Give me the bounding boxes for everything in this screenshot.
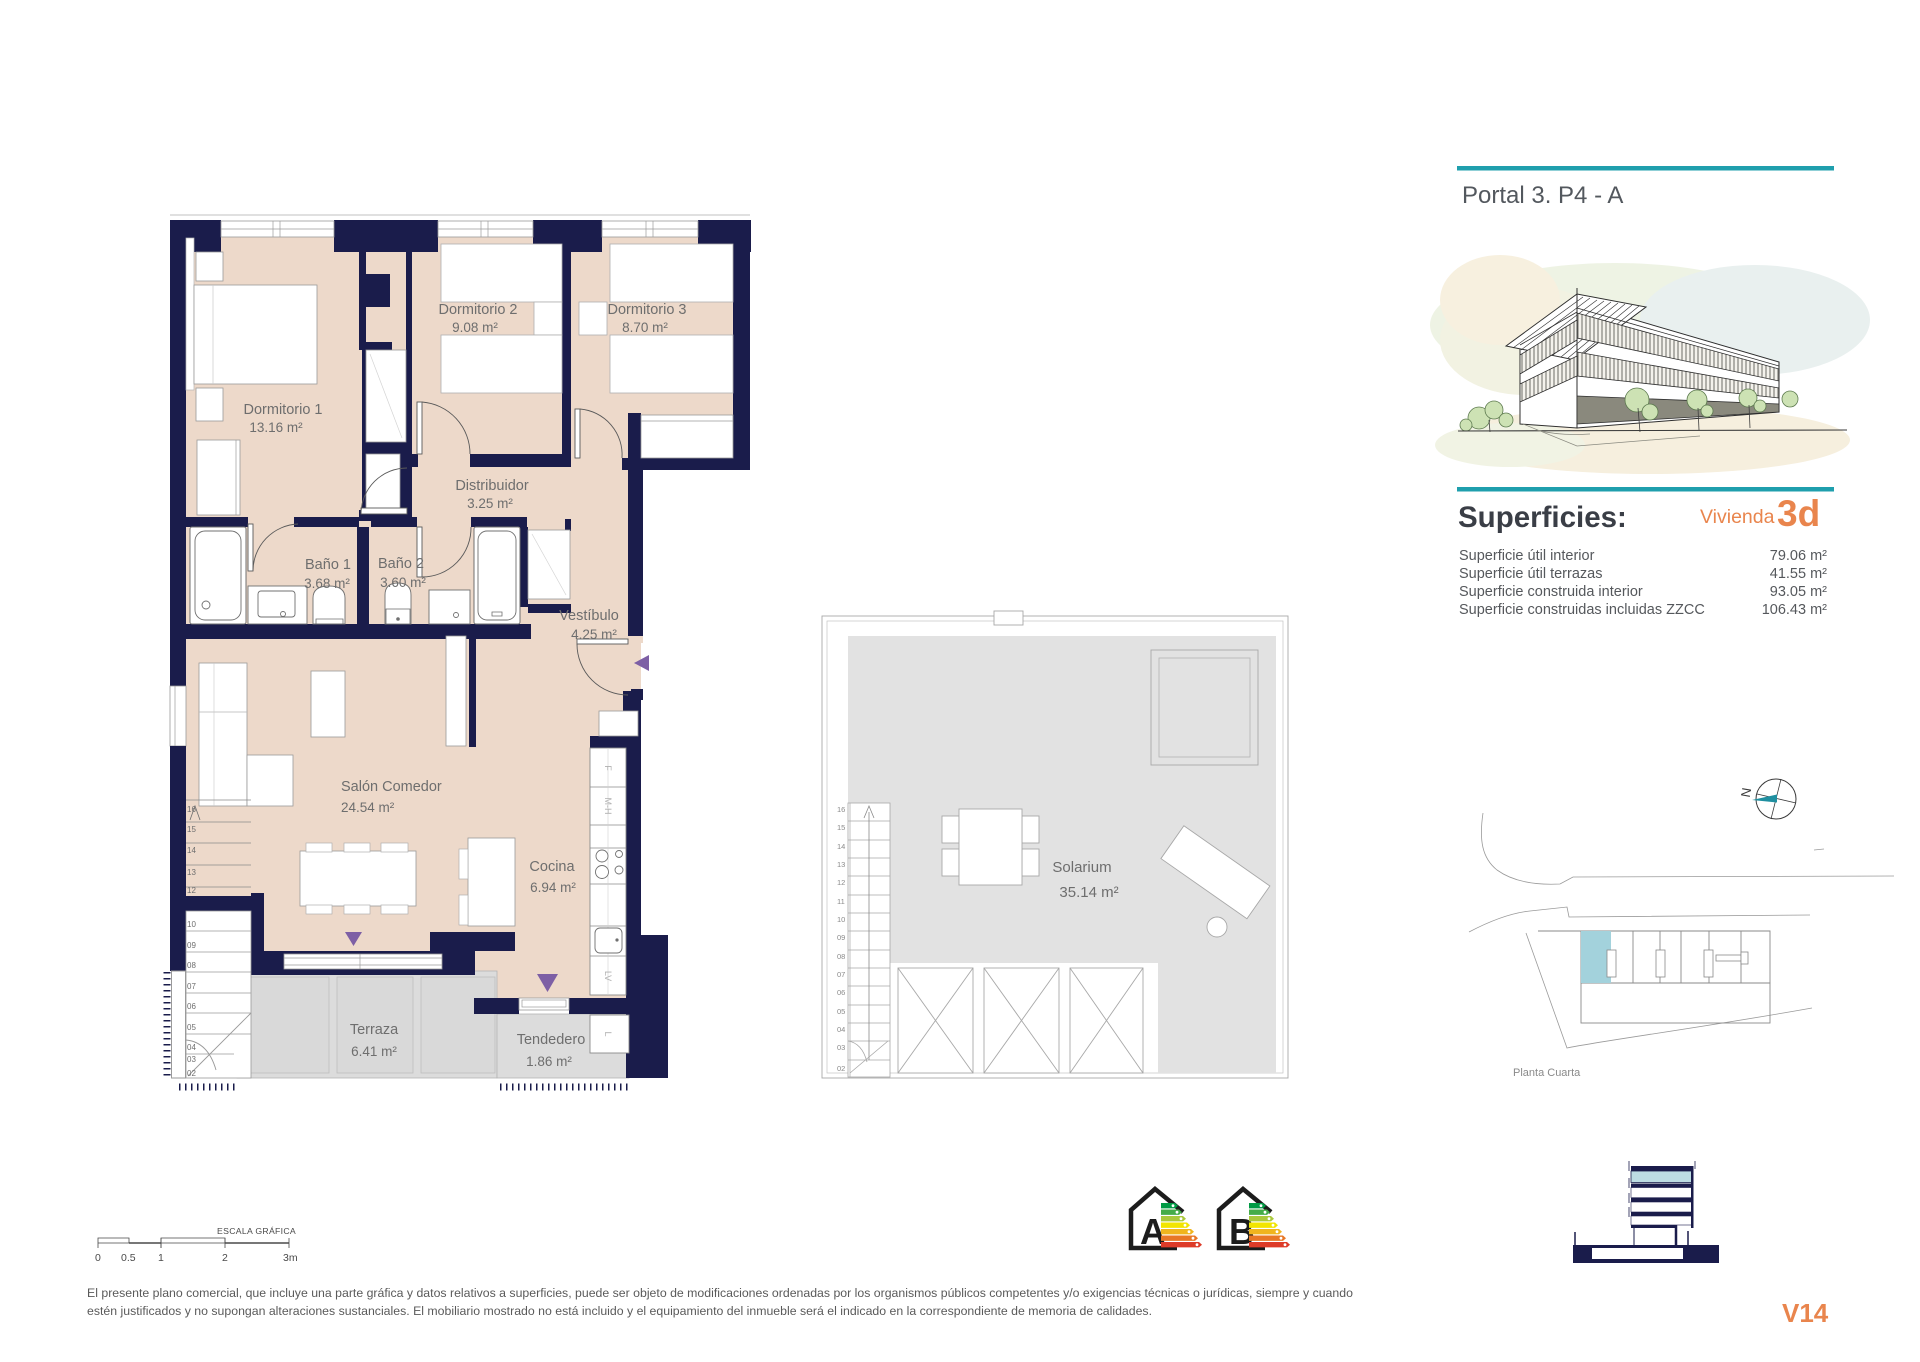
svg-text:0.5: 0.5: [121, 1252, 136, 1264]
svg-text:estén justificados y no supong: estén justificados y no supongan alterac…: [87, 1304, 1152, 1318]
svg-text:02: 02: [837, 1064, 845, 1073]
svg-text:09: 09: [837, 933, 845, 942]
svg-text:15: 15: [187, 825, 196, 834]
svg-text:F: F: [603, 765, 613, 771]
svg-text:06: 06: [837, 988, 845, 997]
svg-text:93.05 m²: 93.05 m²: [1770, 584, 1827, 600]
svg-text:Salón Comedor: Salón Comedor: [341, 779, 442, 795]
svg-text:02: 02: [187, 1069, 196, 1078]
svg-text:L: L: [603, 1031, 613, 1036]
svg-text:Baño 2: Baño 2: [378, 556, 424, 572]
svg-text:3.25 m²: 3.25 m²: [467, 496, 513, 511]
svg-text:M-H: M-H: [603, 798, 613, 815]
svg-text:3d: 3d: [1777, 493, 1820, 534]
svg-text:4.25 m²: 4.25 m²: [571, 627, 617, 642]
svg-text:Vivienda: Vivienda: [1700, 506, 1775, 528]
svg-text:03: 03: [187, 1055, 196, 1064]
svg-text:41.55 m²: 41.55 m²: [1770, 566, 1827, 582]
svg-text:Dormitorio 2: Dormitorio 2: [439, 302, 518, 318]
svg-text:12: 12: [837, 878, 845, 887]
svg-text:Portal 3. P4 - A: Portal 3. P4 - A: [1462, 182, 1623, 209]
svg-text:03: 03: [837, 1043, 845, 1052]
svg-text:V14: V14: [1782, 1298, 1829, 1328]
svg-text:07: 07: [187, 982, 196, 991]
svg-text:LV: LV: [603, 971, 613, 981]
svg-text:Dormitorio 3: Dormitorio 3: [608, 302, 687, 318]
svg-text:ESCALA GRÁFICA: ESCALA GRÁFICA: [217, 1226, 296, 1236]
svg-text:16: 16: [187, 805, 196, 814]
svg-text:Distribuidor: Distribuidor: [455, 478, 528, 494]
svg-text:Tendedero: Tendedero: [517, 1032, 586, 1048]
svg-text:106.43 m²: 106.43 m²: [1762, 602, 1827, 618]
svg-text:13: 13: [187, 868, 196, 877]
svg-text:Planta Cuarta: Planta Cuarta: [1513, 1067, 1581, 1079]
svg-text:07: 07: [837, 970, 845, 979]
svg-text:11: 11: [837, 897, 845, 906]
svg-text:Superficies:: Superficies:: [1458, 501, 1627, 534]
svg-text:8.70 m²: 8.70 m²: [622, 320, 668, 335]
svg-text:15: 15: [837, 823, 845, 832]
svg-text:35.14 m²: 35.14 m²: [1059, 884, 1118, 901]
svg-text:Superficie útil interior: Superficie útil interior: [1459, 548, 1595, 564]
svg-text:2: 2: [222, 1252, 228, 1264]
svg-text:16: 16: [837, 805, 845, 814]
svg-text:Cocina: Cocina: [529, 859, 575, 875]
svg-text:Terraza: Terraza: [350, 1022, 399, 1038]
svg-text:1: 1: [158, 1252, 164, 1264]
svg-text:9.08 m²: 9.08 m²: [452, 320, 498, 335]
svg-text:3.60 m²: 3.60 m²: [380, 575, 426, 590]
svg-text:09: 09: [187, 941, 196, 950]
svg-text:El presente plano comercial, q: El presente plano comercial, que incluye…: [87, 1286, 1353, 1300]
svg-text:06: 06: [187, 1002, 196, 1011]
svg-text:Superficie construidas incluid: Superficie construidas incluidas ZZCC: [1459, 602, 1705, 618]
svg-text:0: 0: [95, 1252, 101, 1264]
svg-text:Solarium: Solarium: [1052, 859, 1111, 876]
svg-text:Dormitorio 1: Dormitorio 1: [244, 402, 323, 418]
svg-text:Vestíbulo: Vestíbulo: [559, 608, 619, 624]
svg-text:Superficie construida interior: Superficie construida interior: [1459, 584, 1643, 600]
svg-text:13: 13: [837, 860, 845, 869]
svg-text:Baño 1: Baño 1: [305, 557, 351, 573]
svg-text:04: 04: [187, 1043, 196, 1052]
svg-text:13.16 m²: 13.16 m²: [249, 420, 303, 435]
svg-text:04: 04: [837, 1025, 845, 1034]
svg-text:14: 14: [187, 846, 196, 855]
svg-text:79.06 m²: 79.06 m²: [1770, 548, 1827, 564]
svg-text:05: 05: [837, 1007, 845, 1016]
svg-text:6.41 m²: 6.41 m²: [351, 1044, 397, 1059]
svg-text:10: 10: [837, 915, 845, 924]
svg-text:1.86 m²: 1.86 m²: [526, 1054, 572, 1069]
svg-text:12: 12: [187, 886, 196, 895]
svg-text:10: 10: [187, 920, 196, 929]
svg-text:05: 05: [187, 1023, 196, 1032]
svg-text:Superficie útil terrazas: Superficie útil terrazas: [1459, 566, 1602, 582]
svg-text:08: 08: [837, 952, 845, 961]
svg-text:24.54 m²: 24.54 m²: [341, 800, 395, 815]
svg-text:3.68 m²: 3.68 m²: [304, 576, 350, 591]
svg-text:14: 14: [837, 842, 845, 851]
svg-text:3m: 3m: [283, 1252, 298, 1264]
svg-text:6.94 m²: 6.94 m²: [530, 880, 576, 895]
svg-text:08: 08: [187, 961, 196, 970]
